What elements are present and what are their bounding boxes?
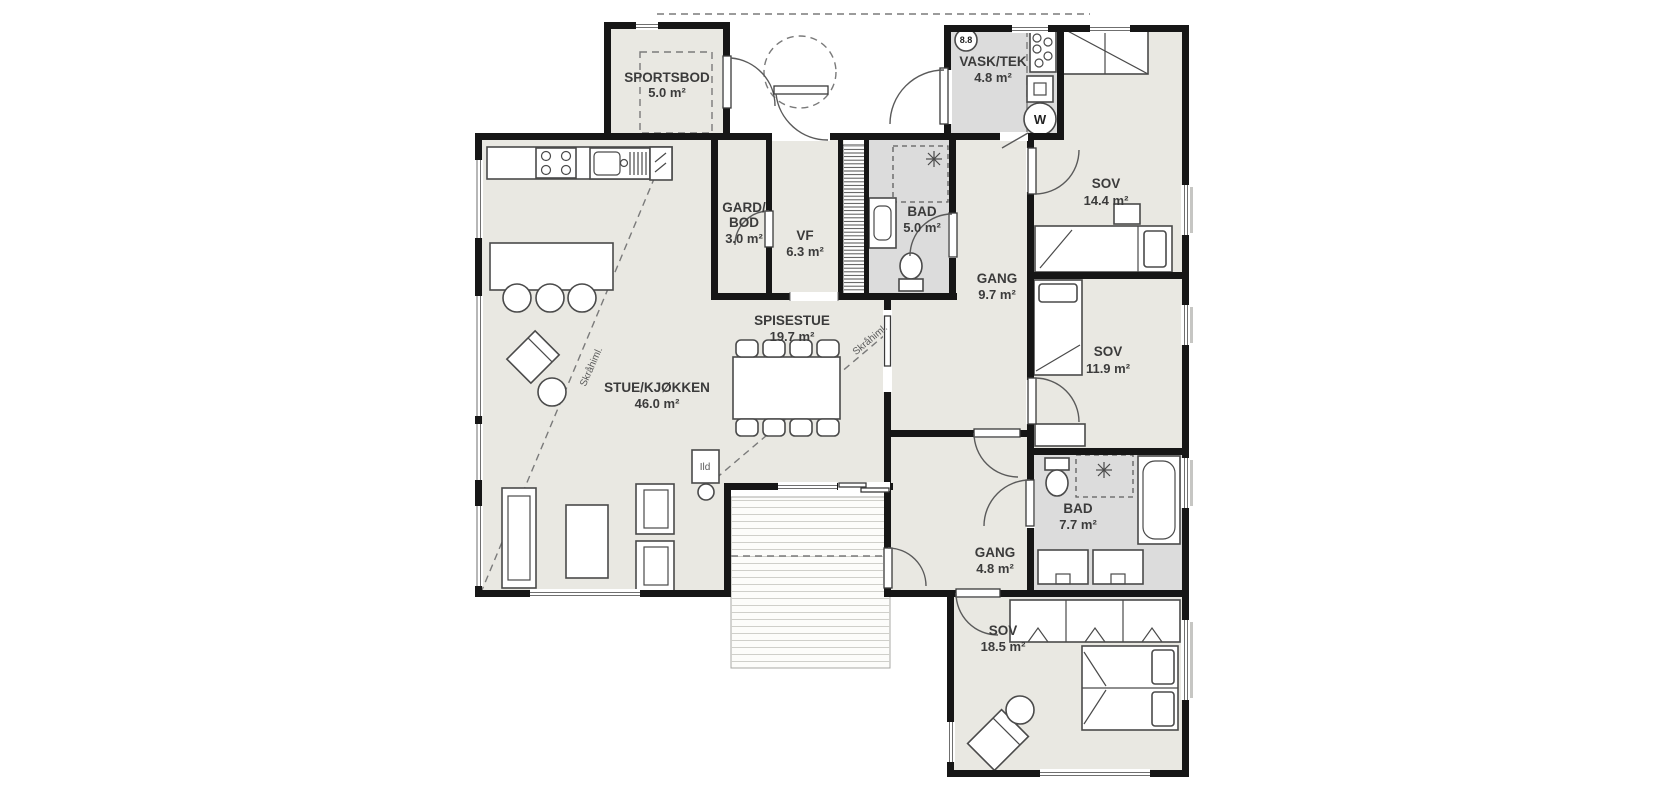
wall [711, 140, 718, 300]
svg-text:SOV: SOV [1094, 344, 1123, 359]
fireplace-label: Ild [700, 462, 711, 473]
wall [944, 25, 1189, 32]
window [474, 296, 483, 416]
side-table [1006, 696, 1034, 724]
wall [724, 483, 731, 597]
room-label-gang-2: GANG 4.8 m² [975, 545, 1016, 576]
window [1181, 305, 1193, 345]
room-label-bad-1: BAD 5.0 m² [903, 204, 941, 235]
wall [604, 22, 611, 140]
svg-text:VF: VF [796, 228, 813, 243]
side-table [538, 378, 566, 406]
dishwasher-icon [650, 147, 672, 180]
svg-text:SOV: SOV [989, 623, 1018, 638]
window [1040, 769, 1150, 778]
svg-text:6.3 m²: 6.3 m² [786, 244, 824, 259]
svg-text:STUE/KJØKKEN: STUE/KJØKKEN [604, 380, 710, 395]
window [474, 424, 483, 480]
wall [864, 140, 869, 300]
svg-text:18.5 m²: 18.5 m² [981, 639, 1026, 654]
terrace-deck [731, 497, 890, 668]
armchair [636, 541, 674, 591]
kitchen-island [490, 243, 613, 312]
room-label-bad-2: BAD 7.7 m² [1059, 501, 1097, 532]
dryer-icon [1027, 76, 1053, 102]
bed [1034, 280, 1082, 375]
floor-plan-page: Ild W 8.8 [0, 0, 1670, 800]
sliding-door [838, 482, 890, 492]
svg-text:GARD/: GARD/ [722, 200, 766, 215]
room-label-gang-1: GANG 9.7 m² [977, 271, 1018, 302]
room-vf-floor [764, 137, 844, 297]
sofa [502, 488, 536, 588]
toilet-icon [1045, 458, 1069, 496]
wardrobe [1062, 28, 1148, 74]
svg-text:9.7 m²: 9.7 m² [978, 287, 1016, 302]
wardrobe-row [1010, 600, 1180, 642]
svg-text:GANG: GANG [975, 545, 1016, 560]
pillow [1144, 231, 1166, 267]
pillow [1039, 284, 1077, 302]
window [946, 722, 955, 762]
dresser [1035, 424, 1085, 446]
washing-machine-icon: W [1024, 103, 1056, 135]
water-heater-icon [1030, 30, 1056, 72]
toilet-icon [899, 253, 923, 291]
armchair [636, 484, 674, 534]
svg-text:5.0 m²: 5.0 m² [648, 85, 686, 100]
technical-shaft [843, 145, 865, 295]
kitchen-counter [487, 147, 672, 180]
entry-door [772, 86, 830, 141]
svg-text:14.4 m²: 14.4 m² [1084, 193, 1129, 208]
bar-stool [536, 284, 564, 312]
dining-table [733, 357, 840, 419]
vanity-sink-icon [869, 198, 896, 248]
door [722, 56, 775, 108]
pocket-door [883, 310, 892, 392]
bathtub-icon [1138, 456, 1180, 544]
wall [887, 590, 1189, 597]
wall [838, 140, 843, 300]
svg-text:4.8 m²: 4.8 m² [976, 561, 1014, 576]
svg-text:SOV: SOV [1092, 176, 1121, 191]
window [636, 21, 658, 30]
wall [604, 22, 730, 29]
pillow [1152, 650, 1174, 684]
window [474, 160, 483, 238]
wall [1057, 25, 1064, 140]
door [890, 68, 952, 124]
opening [790, 292, 838, 301]
coffee-table [566, 505, 608, 578]
svg-text:BOD: BOD [729, 215, 759, 230]
svg-text:7.7 m²: 7.7 m² [1059, 517, 1097, 532]
svg-text:3.0 m²: 3.0 m² [725, 231, 763, 246]
bar-stool [568, 284, 596, 312]
svg-text:19.7 m²: 19.7 m² [770, 329, 815, 344]
svg-text:GANG: GANG [977, 271, 1018, 286]
pillow [1152, 692, 1174, 726]
washing-machine-label: W [1034, 112, 1047, 127]
double-bed [1082, 646, 1178, 730]
svg-text:4.8 m²: 4.8 m² [974, 70, 1012, 85]
window [778, 482, 837, 491]
window [1012, 24, 1048, 33]
svg-text:11.9 m²: 11.9 m² [1086, 361, 1131, 376]
svg-text:VASK/TEK: VASK/TEK [959, 54, 1027, 69]
window [530, 589, 640, 598]
window [1181, 458, 1193, 508]
svg-text:BAD: BAD [1063, 501, 1092, 516]
svg-text:BAD: BAD [907, 204, 936, 219]
sprinkler-icon [1096, 462, 1112, 478]
window [1090, 24, 1130, 33]
sprinkler-icon [926, 151, 942, 167]
floor-plan-drawing: Ild W 8.8 [0, 0, 1670, 800]
ceiling-height-label: 8.8 [960, 35, 973, 45]
svg-text:SPISESTUE: SPISESTUE [754, 313, 830, 328]
window [1181, 620, 1193, 700]
svg-text:46.0 m²: 46.0 m² [635, 396, 680, 411]
svg-text:5.0 m²: 5.0 m² [903, 220, 941, 235]
stove-icon [536, 148, 576, 178]
bed [1035, 226, 1172, 272]
wall [1027, 272, 1189, 279]
wall [475, 133, 1063, 140]
wall [1027, 448, 1189, 455]
window [1181, 185, 1193, 235]
bar-stool [503, 284, 531, 312]
ceiling-height-marker-icon: 8.8 [955, 29, 977, 51]
sink-icon [590, 148, 650, 179]
window [474, 506, 483, 586]
svg-text:SPORTSBOD: SPORTSBOD [624, 70, 710, 85]
